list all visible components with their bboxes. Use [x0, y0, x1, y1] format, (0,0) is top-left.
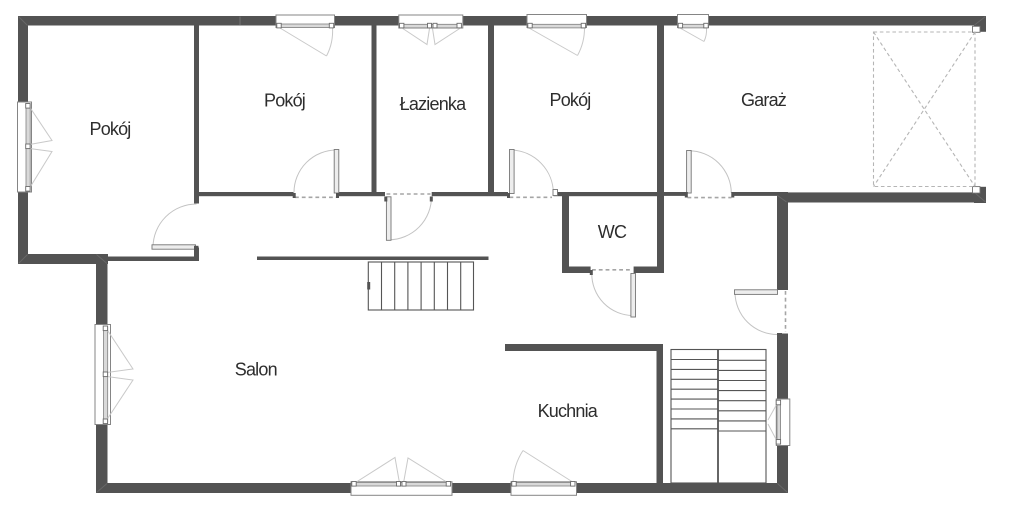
svg-text:Kuchnia: Kuchnia: [538, 401, 599, 421]
svg-text:Łazienka: Łazienka: [400, 94, 467, 114]
svg-text:Pokój: Pokój: [264, 91, 305, 111]
svg-text:WC: WC: [598, 222, 627, 242]
svg-text:Pokój: Pokój: [89, 119, 130, 139]
svg-text:Salon: Salon: [235, 360, 277, 380]
svg-text:Pokój: Pokój: [549, 90, 590, 110]
svg-text:Garaż: Garaż: [741, 90, 787, 110]
